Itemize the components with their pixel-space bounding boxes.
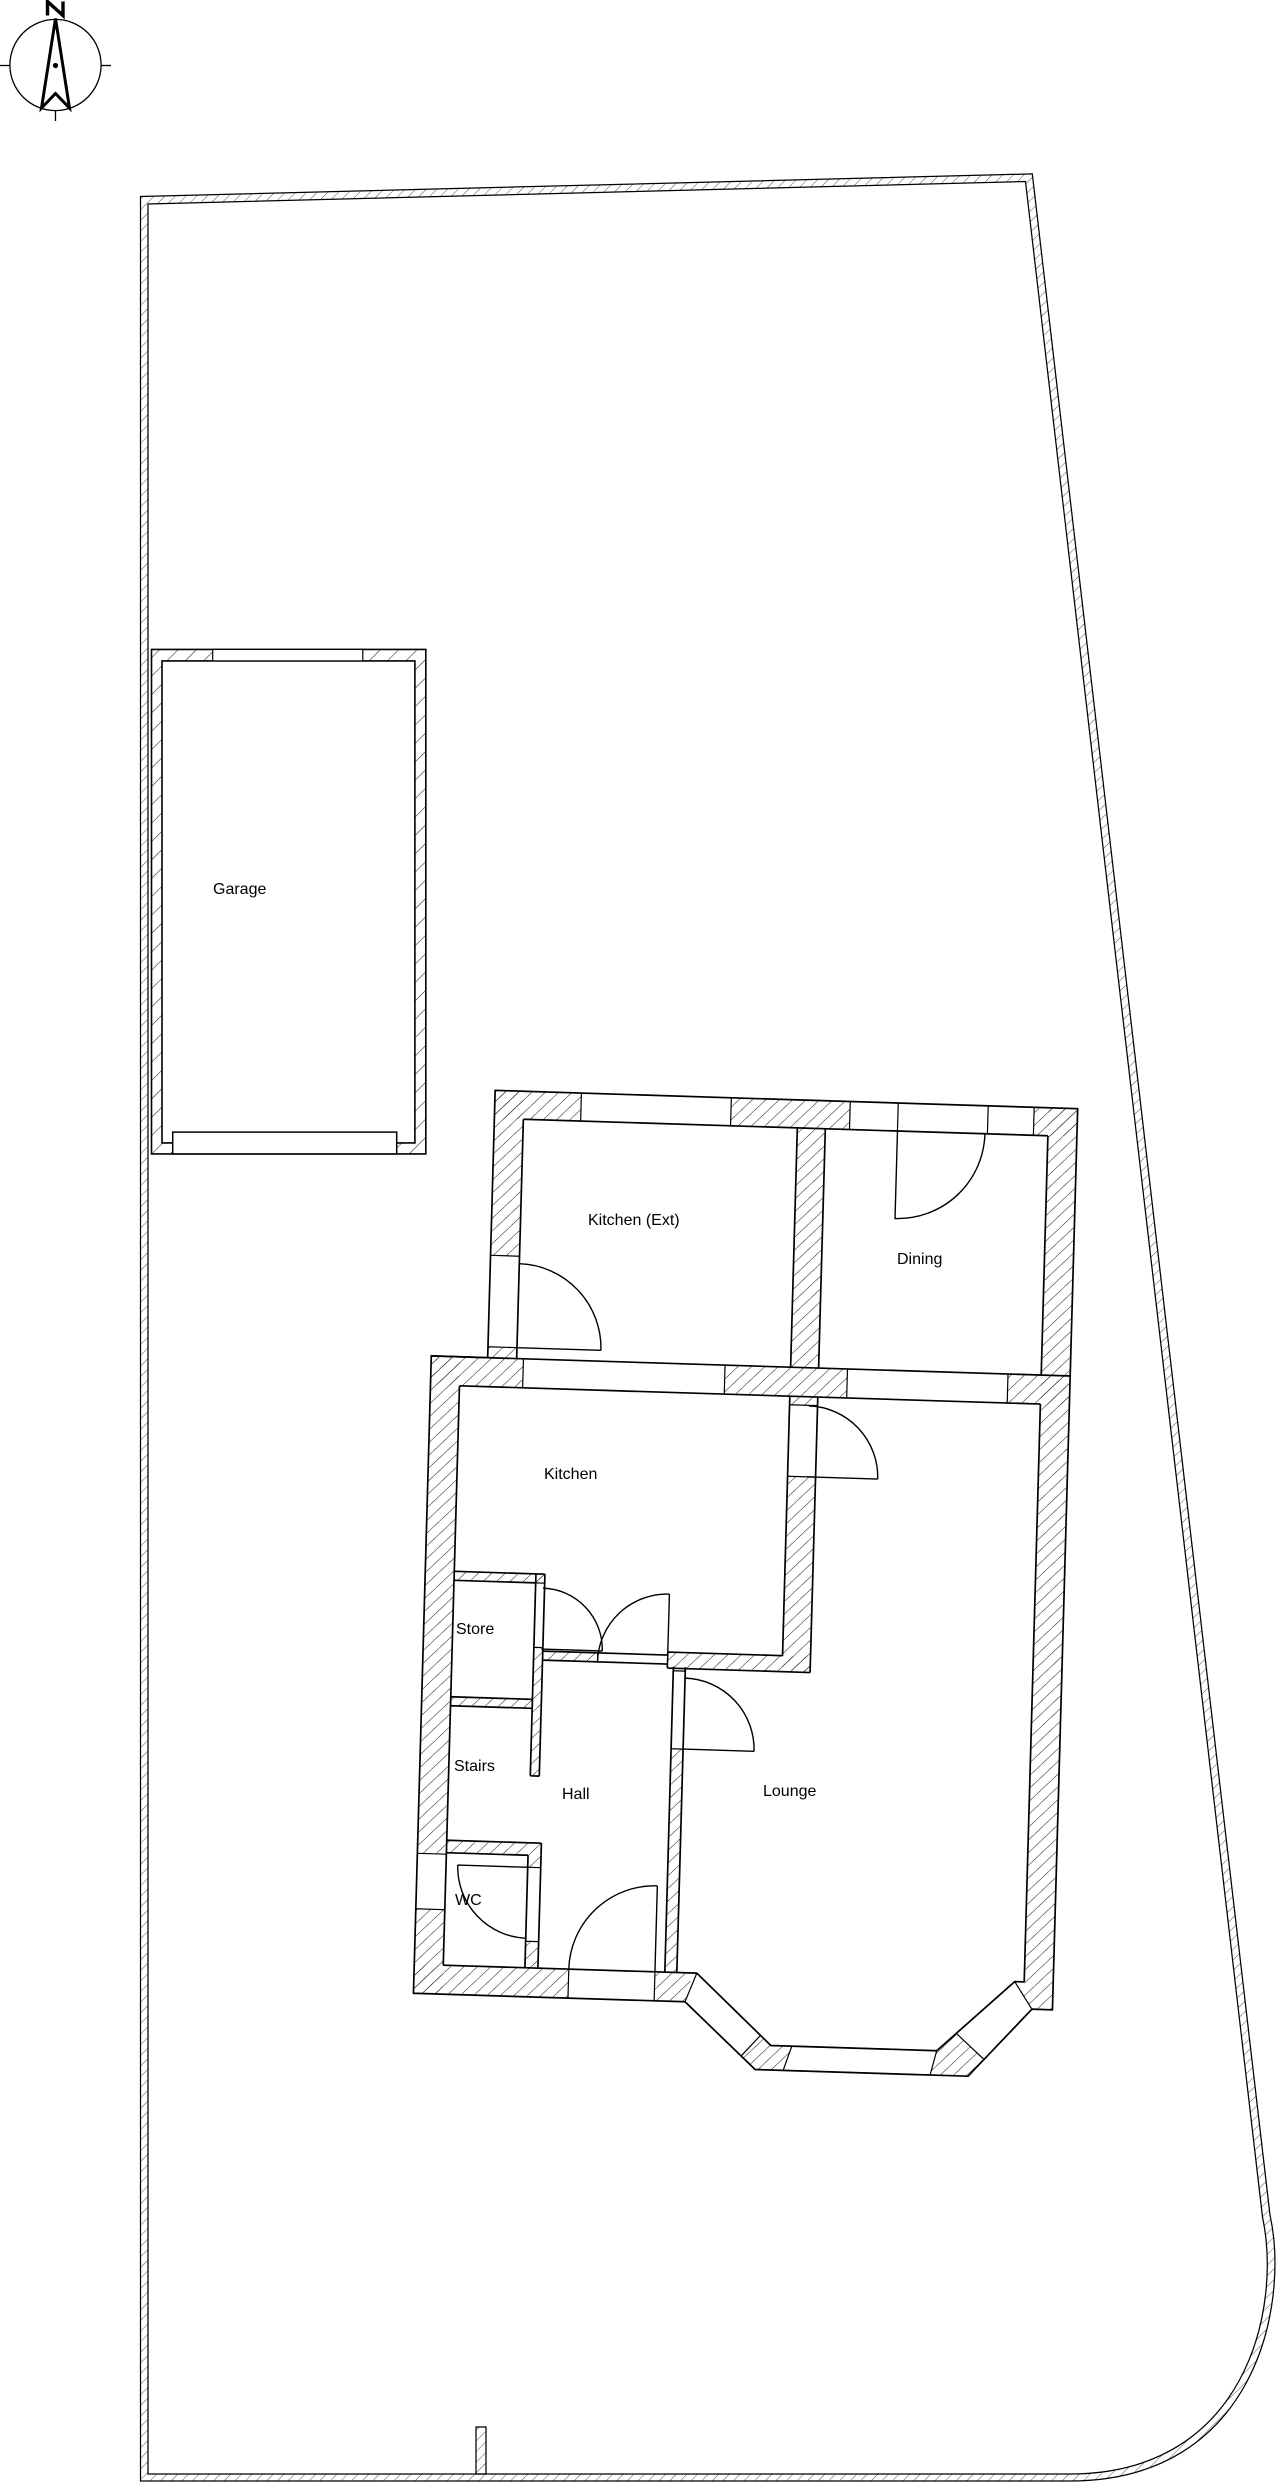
svg-text:Kitchen: Kitchen — [544, 1466, 597, 1483]
svg-text:Store: Store — [456, 1621, 494, 1638]
svg-text:Hall: Hall — [562, 1786, 590, 1803]
svg-text:Dining: Dining — [897, 1251, 942, 1268]
svg-text:Lounge: Lounge — [763, 1783, 816, 1800]
svg-text:Garage: Garage — [213, 881, 266, 898]
svg-text:WC: WC — [455, 1892, 482, 1909]
svg-text:Kitchen (Ext): Kitchen (Ext) — [588, 1212, 680, 1229]
svg-text:Stairs: Stairs — [454, 1758, 495, 1775]
